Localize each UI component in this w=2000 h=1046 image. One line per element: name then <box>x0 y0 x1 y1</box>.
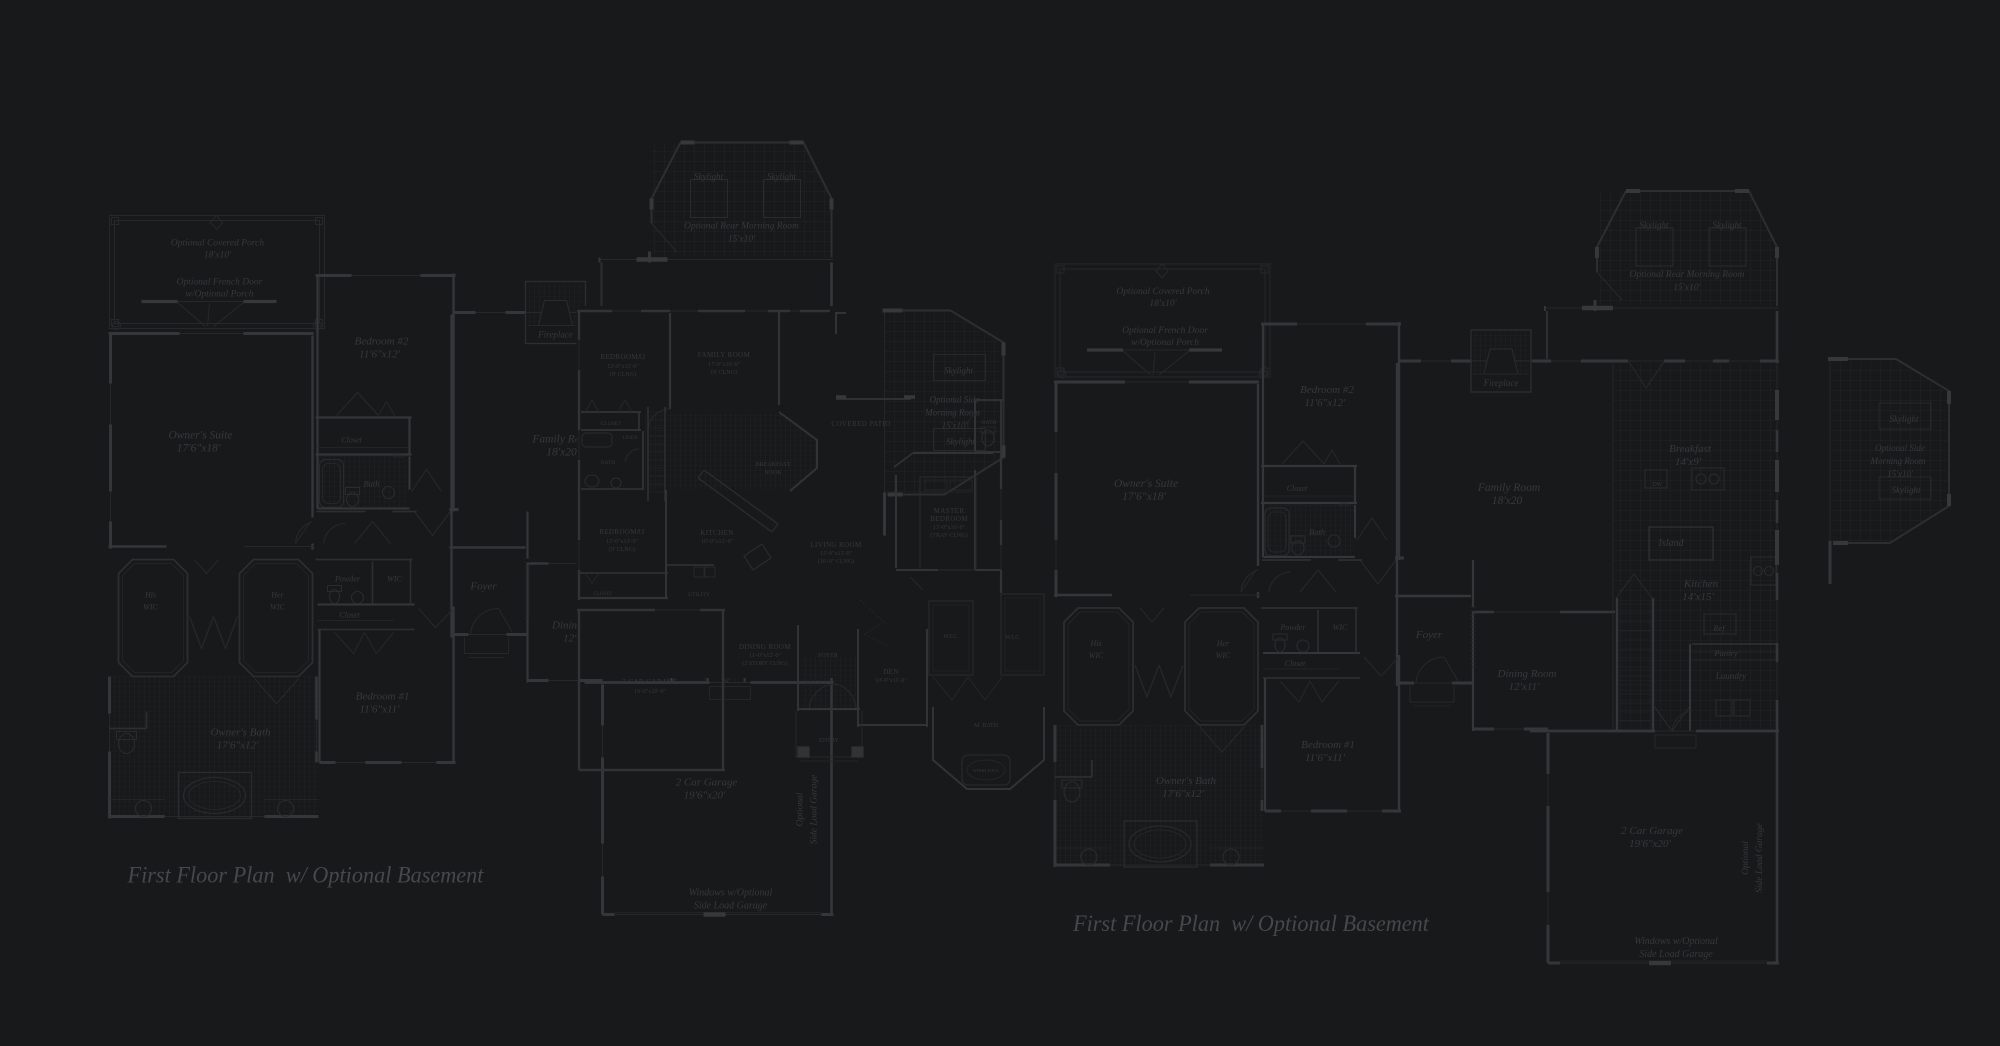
svg-text:BEDROOM#2: BEDROOM#2 <box>600 353 646 361</box>
svg-text:10'-0"x12'-0": 10'-0"x12'-0" <box>701 539 734 545</box>
svg-text:Side Load Garage: Side Load Garage <box>1755 823 1765 893</box>
svg-text:19'-6"x20'-0": 19'-6"x20'-0" <box>634 689 667 695</box>
svg-text:WIC: WIC <box>1333 623 1348 632</box>
svg-text:Bedroom #1: Bedroom #1 <box>1301 739 1355 751</box>
svg-text:DEN: DEN <box>883 668 899 676</box>
svg-text:Windows w/Optional: Windows w/Optional <box>1634 936 1718 947</box>
svg-text:Ref: Ref <box>1712 623 1726 633</box>
svg-text:ENTRY: ENTRY <box>819 738 839 744</box>
svg-text:Laundry: Laundry <box>1715 671 1747 681</box>
svg-text:17'-0"x19'-0": 17'-0"x19'-0" <box>708 362 741 368</box>
svg-text:Side Load Garage: Side Load Garage <box>1639 949 1713 960</box>
svg-text:(10'-0" CLNG): (10'-0" CLNG) <box>818 558 854 565</box>
svg-text:(9' CLNG): (9' CLNG) <box>610 371 636 378</box>
svg-text:(9' CLNG): (9' CLNG) <box>711 369 737 376</box>
svg-text:BEDROOM: BEDROOM <box>930 515 968 523</box>
svg-text:Optional: Optional <box>1741 841 1751 875</box>
svg-text:His: His <box>1089 639 1101 648</box>
svg-text:W.I.C.: W.I.C. <box>1005 635 1021 641</box>
svg-text:COVERED PATIO: COVERED PATIO <box>831 420 890 428</box>
svg-text:19'6"x20': 19'6"x20' <box>1629 838 1671 850</box>
svg-text:MASTER: MASTER <box>934 507 965 515</box>
svg-text:12'x11': 12'x11' <box>1509 681 1540 693</box>
svg-text:BREAKFAST: BREAKFAST <box>756 462 791 468</box>
svg-text:KITCHEN: KITCHEN <box>700 529 734 537</box>
svg-text:w/Optional Porch: w/Optional Porch <box>1131 338 1199 348</box>
svg-text:Foyer: Foyer <box>1415 629 1443 641</box>
svg-text:17'6"x12': 17'6"x12' <box>1162 788 1204 800</box>
svg-text:2 Car Garage: 2 Car Garage <box>1621 825 1683 837</box>
svg-text:11'-0"x12'-0": 11'-0"x12'-0" <box>749 653 781 659</box>
svg-text:Closet: Closet <box>1287 484 1308 493</box>
svg-text:Morning Room: Morning Room <box>1870 456 1926 466</box>
svg-text:Dining Room: Dining Room <box>1497 668 1557 680</box>
svg-text:Bath: Bath <box>1309 527 1325 537</box>
svg-text:Pantry: Pantry <box>1713 648 1737 658</box>
svg-text:FAMILY ROOM: FAMILY ROOM <box>698 351 751 359</box>
svg-text:12'-0"x11'-0": 12'-0"x11'-0" <box>607 364 639 370</box>
svg-text:Skylight: Skylight <box>1640 220 1669 230</box>
svg-text:Family Room: Family Room <box>1477 482 1540 494</box>
svg-text:FOYER: FOYER <box>818 653 838 659</box>
svg-text:Owner's Bath: Owner's Bath <box>1156 775 1217 787</box>
svg-text:BATH: BATH <box>982 420 996 426</box>
svg-text:NOOK: NOOK <box>764 470 782 476</box>
svg-text:M. BATH: M. BATH <box>974 723 999 729</box>
svg-text:WIC: WIC <box>1089 651 1104 660</box>
svg-text:First Floor Plan w/ Optional: First Floor Plan w/ Optional Basement <box>1072 911 1430 936</box>
svg-text:Optional Covered Porch: Optional Covered Porch <box>1116 287 1209 297</box>
svg-text:18'x20: 18'x20 <box>1492 495 1523 507</box>
svg-text:11'6"x12': 11'6"x12' <box>1305 397 1347 409</box>
svg-text:13'-0"x16'-0": 13'-0"x16'-0" <box>933 525 966 531</box>
svg-text:Bedroom #2: Bedroom #2 <box>1300 384 1354 396</box>
svg-text:Breakfast: Breakfast <box>1669 443 1712 455</box>
svg-text:15'x10': 15'x10' <box>1887 469 1914 479</box>
svg-text:Her: Her <box>1216 639 1230 648</box>
svg-text:BATH: BATH <box>601 460 615 466</box>
svg-text:Optional French Door: Optional French Door <box>1122 326 1208 336</box>
svg-text:LINEN: LINEN <box>623 436 638 441</box>
svg-text:18'x10': 18'x10' <box>1149 299 1177 309</box>
svg-text:(9' CLNG): (9' CLNG) <box>609 546 635 553</box>
svg-text:Skylight: Skylight <box>1892 485 1921 495</box>
svg-text:Kitchen: Kitchen <box>1683 578 1719 590</box>
svg-text:Island: Island <box>1658 538 1685 549</box>
svg-text:14'x15': 14'x15' <box>1682 591 1714 603</box>
svg-text:LIVING ROOM: LIVING ROOM <box>810 541 862 549</box>
svg-text:(TRAY CLNG): (TRAY CLNG) <box>930 532 967 539</box>
svg-text:DW: DW <box>1651 481 1663 488</box>
svg-text:10'-0"x11'-0": 10'-0"x11'-0" <box>875 678 907 684</box>
svg-text:Optional Side: Optional Side <box>1875 443 1925 453</box>
svg-text:Owner's Suite: Owner's Suite <box>1114 478 1178 490</box>
svg-text:15'x10': 15'x10' <box>1673 283 1701 293</box>
svg-text:CLOSET: CLOSET <box>594 592 613 597</box>
svg-text:12'-0"x13'-0": 12'-0"x13'-0" <box>820 551 853 557</box>
svg-text:2 CAR GARAGE: 2 CAR GARAGE <box>622 678 677 686</box>
svg-text:WHIRLPOOL: WHIRLPOOL <box>973 768 1000 773</box>
svg-text:UTILITY: UTILITY <box>688 592 710 598</box>
svg-text:Skylight: Skylight <box>1890 414 1919 424</box>
svg-text:Optional Rear Morning Room: Optional Rear Morning Room <box>1630 270 1745 280</box>
svg-text:(2 STORY CLNG): (2 STORY CLNG) <box>742 660 787 667</box>
svg-text:CLOSET: CLOSET <box>601 421 622 427</box>
svg-text:11'6"x11': 11'6"x11' <box>1305 752 1346 764</box>
svg-text:14'x9': 14'x9' <box>1675 456 1702 468</box>
svg-text:Powder: Powder <box>1280 623 1307 632</box>
svg-text:BEDROOM#3: BEDROOM#3 <box>599 528 645 536</box>
svg-text:Skylight: Skylight <box>1713 220 1742 230</box>
svg-text:DINING ROOM: DINING ROOM <box>739 643 791 651</box>
svg-text:W.I.C.: W.I.C. <box>943 634 959 640</box>
svg-text:17'6"x18': 17'6"x18' <box>1122 491 1166 503</box>
svg-text:12'-0"x13'-0": 12'-0"x13'-0" <box>606 539 639 545</box>
svg-text:Closet: Closet <box>1285 659 1306 668</box>
svg-text:WIC: WIC <box>1216 651 1231 660</box>
svg-text:Fireplace: Fireplace <box>1483 378 1519 388</box>
